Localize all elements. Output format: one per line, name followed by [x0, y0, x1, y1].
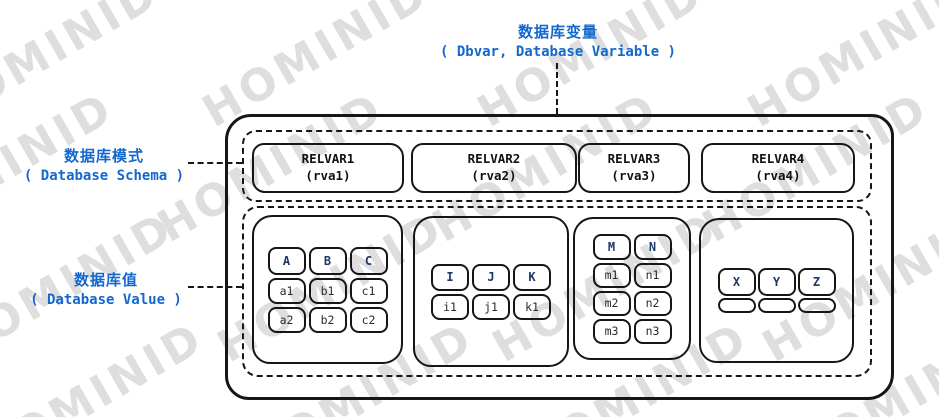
relvar-var: (rva2): [471, 168, 516, 185]
value-label: 数据库值 ( Database Value ): [20, 269, 192, 308]
table-cell: c1: [350, 278, 388, 304]
schema-label-cn: 数据库模式: [18, 145, 190, 166]
relvar-name: RELVAR1: [302, 151, 355, 168]
watermark-text: HOMINID: [0, 0, 168, 138]
table-cell: i1: [431, 294, 469, 320]
table-cell: m3: [593, 319, 631, 344]
value-label-cn: 数据库值: [20, 269, 192, 290]
relvar-name: RELVAR4: [752, 151, 805, 168]
schema-connector-line: [188, 162, 242, 164]
relvar-box-4: RELVAR4 (rva4): [701, 143, 855, 193]
table-cell-empty: [798, 298, 836, 313]
table-header-cell: K: [513, 264, 551, 291]
table-cell: b2: [309, 307, 347, 333]
table-header-cell: J: [472, 264, 510, 291]
relvar-var: (rva1): [305, 168, 350, 185]
table-header-cell: X: [718, 268, 756, 296]
relvar-var: (rva3): [611, 168, 656, 185]
table-header-cell: N: [634, 234, 672, 260]
table-cell: c2: [350, 307, 388, 333]
table-cell: j1: [472, 294, 510, 320]
schema-label: 数据库模式 ( Database Schema ): [18, 145, 190, 184]
value-label-en: ( Database Value ): [20, 292, 192, 308]
table-header-cell: C: [350, 247, 388, 275]
relvar-box-1: RELVAR1 (rva1): [252, 143, 404, 193]
schema-label-en: ( Database Schema ): [18, 168, 190, 184]
table-grid: I J K i1 j1 k1: [431, 264, 551, 320]
diagram-canvas: HOMINID HOMINID HOMINID HOMINID HOMINID …: [0, 0, 939, 417]
watermark-text: HOMINID: [0, 312, 213, 417]
relation-value-table-2: I J K i1 j1 k1: [413, 216, 569, 367]
table-cell: k1: [513, 294, 551, 320]
table-grid: X Y Z: [718, 268, 836, 313]
table-header-cell: Z: [798, 268, 836, 296]
table-header-cell: I: [431, 264, 469, 291]
table-header-cell: M: [593, 234, 631, 260]
relvar-box-3: RELVAR3 (rva3): [578, 143, 690, 193]
relvar-name: RELVAR3: [608, 151, 661, 168]
schema-region: RELVAR1 (rva1) RELVAR2 (rva2) RELVAR3 (r…: [242, 130, 872, 202]
table-cell-empty: [718, 298, 756, 313]
relvar-var: (rva4): [755, 168, 800, 185]
relvar-name: RELVAR2: [468, 151, 521, 168]
table-cell: a2: [268, 307, 306, 333]
table-header-cell: B: [309, 247, 347, 275]
table-cell: m1: [593, 263, 631, 288]
relation-value-table-3: M N m1 n1 m2 n2 m3 n3: [573, 217, 691, 360]
table-cell: n1: [634, 263, 672, 288]
relation-value-table-1: A B C a1 b1 c1 a2 b2 c2: [252, 215, 403, 364]
table-header-cell: Y: [758, 268, 796, 296]
table-cell: n3: [634, 319, 672, 344]
table-header-cell: A: [268, 247, 306, 275]
table-cell: a1: [268, 278, 306, 304]
dbvar-label-cn: 数据库变量: [398, 21, 718, 42]
dbvar-connector-line: [556, 63, 558, 114]
table-cell: b1: [309, 278, 347, 304]
value-connector-line: [188, 286, 242, 288]
table-cell: n2: [634, 291, 672, 316]
table-cell-empty: [758, 298, 796, 313]
dbvar-label-en: ( Dbvar, Database Variable ): [398, 44, 718, 60]
value-region: A B C a1 b1 c1 a2 b2 c2 I J K i1 j1 k1: [242, 206, 872, 377]
dbvar-label: 数据库变量 ( Dbvar, Database Variable ): [398, 21, 718, 60]
table-cell: m2: [593, 291, 631, 316]
table-grid: M N m1 n1 m2 n2 m3 n3: [593, 234, 672, 344]
relvar-box-2: RELVAR2 (rva2): [411, 143, 577, 193]
table-grid: A B C a1 b1 c1 a2 b2 c2: [268, 247, 388, 333]
relation-value-table-4: X Y Z: [699, 218, 854, 363]
